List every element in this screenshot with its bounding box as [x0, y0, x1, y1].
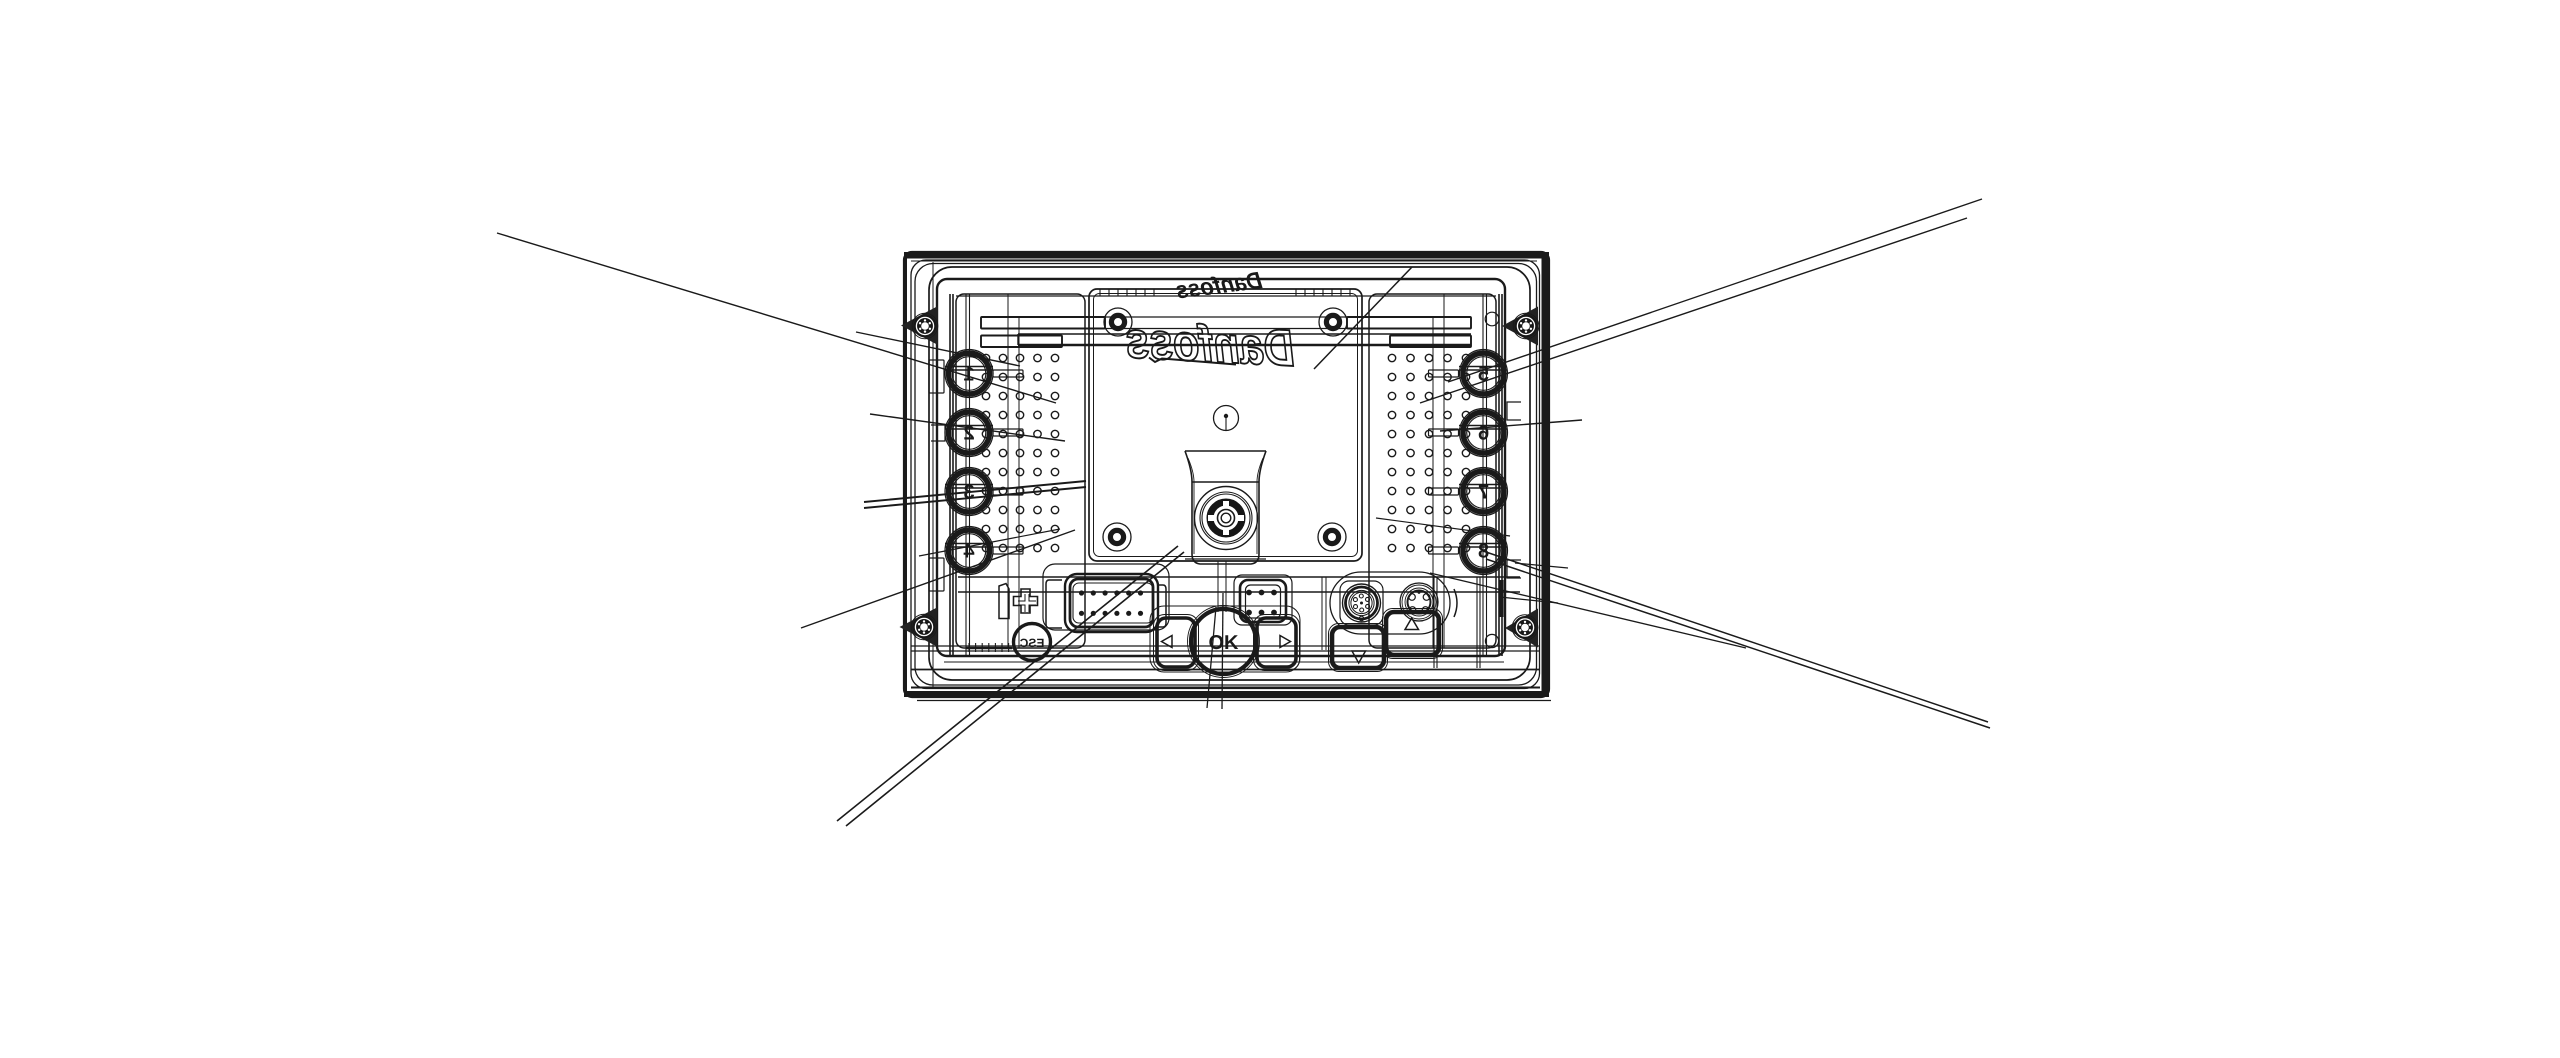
svg-text:Danfoss: Danfoss: [1124, 312, 1296, 378]
svg-text:ESC: ESC: [1019, 636, 1044, 650]
